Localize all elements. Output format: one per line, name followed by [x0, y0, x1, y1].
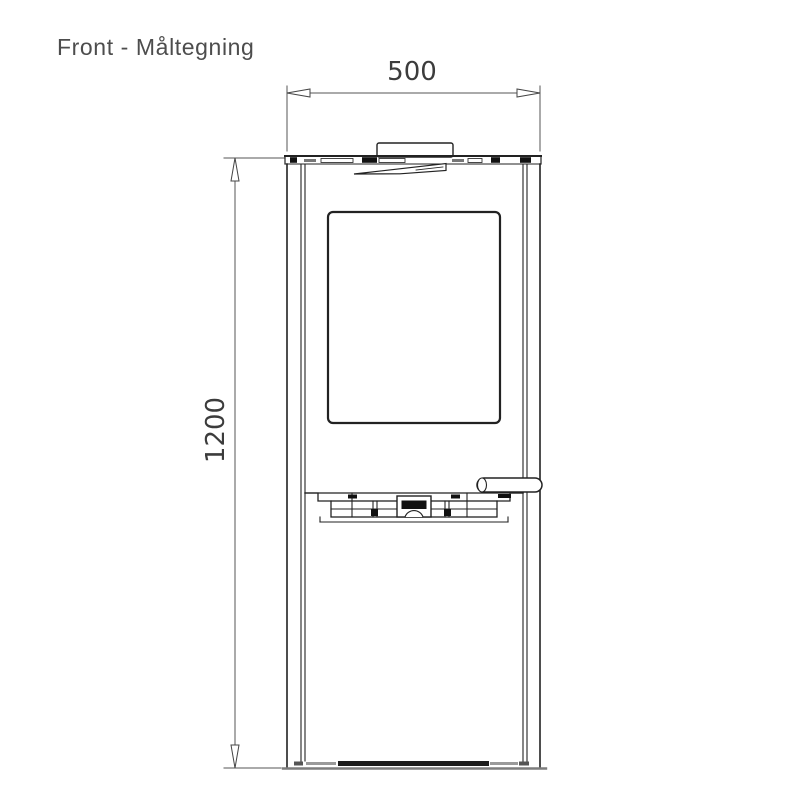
door-bottom-rail: [305, 493, 523, 522]
arrow-up-icon: [231, 158, 239, 181]
flue-collar: [377, 143, 453, 157]
stove-front-view: [283, 143, 546, 769]
door-latch: [397, 496, 431, 517]
technical-drawing: [0, 0, 800, 800]
arrow-down-icon: [231, 745, 239, 768]
door-handle: [477, 478, 542, 492]
arrow-left-icon: [287, 89, 310, 97]
height-dimension: [224, 158, 285, 768]
arrow-right-icon: [517, 89, 540, 97]
base: [283, 761, 546, 769]
width-dimension: [287, 86, 540, 151]
air-control-lever: [354, 164, 446, 175]
glass-window: [328, 212, 500, 423]
